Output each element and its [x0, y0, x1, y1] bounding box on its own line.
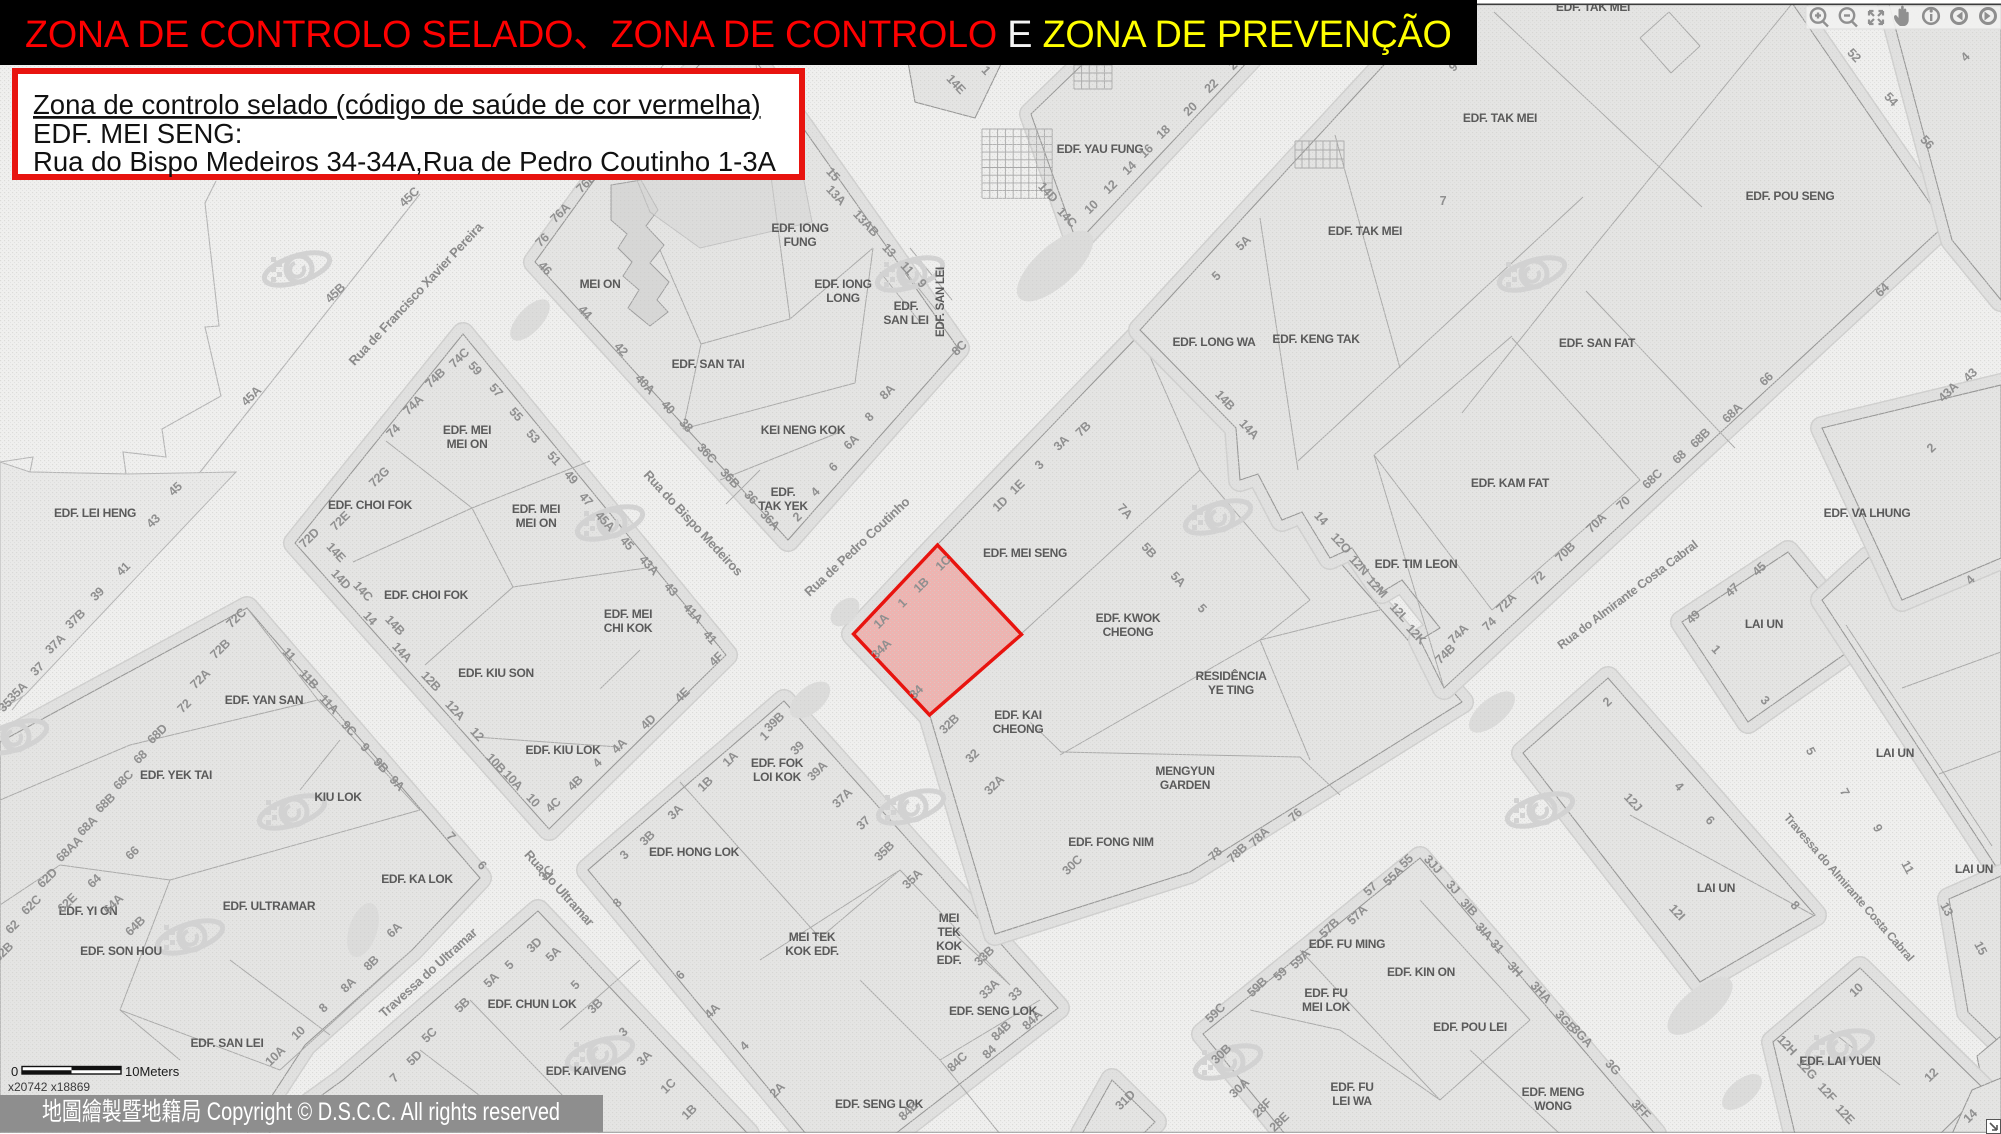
svg-text:EDF. FU: EDF. FU: [1330, 1080, 1373, 1094]
svg-text:TEK: TEK: [937, 925, 961, 939]
svg-text:EDF. LONG WA: EDF. LONG WA: [1172, 335, 1256, 349]
svg-text:EDF. TIM LEON: EDF. TIM LEON: [1375, 557, 1458, 571]
svg-text:EDF. HONG LOK: EDF. HONG LOK: [649, 845, 740, 859]
svg-text:CHEONG: CHEONG: [993, 722, 1044, 736]
svg-text:EDF. KIN ON: EDF. KIN ON: [1387, 965, 1455, 979]
svg-text:EDF. KAM FAT: EDF. KAM FAT: [1471, 476, 1550, 490]
svg-text:Rua do Bispo Medeiros 34-34A,R: Rua do Bispo Medeiros 34-34A,Rua de Pedr…: [33, 146, 777, 177]
svg-text:EDF. KA LOK: EDF. KA LOK: [381, 872, 453, 886]
svg-text:LAI UN: LAI UN: [1697, 881, 1735, 895]
svg-text:EDF. MEI: EDF. MEI: [512, 502, 560, 516]
svg-text:EDF. ULTRAMAR: EDF. ULTRAMAR: [223, 899, 316, 913]
svg-text:EDF. FU MING: EDF. FU MING: [1309, 937, 1385, 951]
svg-text:EDF. TAK MEI: EDF. TAK MEI: [1328, 224, 1402, 238]
svg-text:EDF. MEI SENG:: EDF. MEI SENG:: [33, 118, 242, 149]
svg-text:10Meters: 10Meters: [125, 1064, 180, 1079]
svg-text:FUNG: FUNG: [784, 235, 817, 249]
svg-text:EDF. FU: EDF. FU: [1304, 986, 1347, 1000]
svg-text:EDF. IONG: EDF. IONG: [771, 221, 828, 235]
svg-text:EDF. KAIVENG: EDF. KAIVENG: [546, 1064, 626, 1078]
svg-text:EDF. CHOI FOK: EDF. CHOI FOK: [384, 588, 469, 602]
svg-text:Zona de controlo selado (códig: Zona de controlo selado (código de saúde…: [33, 89, 761, 120]
svg-text:EDF. FONG NIM: EDF. FONG NIM: [1068, 835, 1154, 849]
svg-text:WONG: WONG: [1534, 1099, 1571, 1113]
svg-text:KIU LOK: KIU LOK: [314, 790, 362, 804]
svg-text:EDF. SON HOU: EDF. SON HOU: [80, 944, 162, 958]
svg-text:EDF. KWOK: EDF. KWOK: [1096, 611, 1161, 625]
svg-text:EDF. IONG: EDF. IONG: [814, 277, 871, 291]
svg-text:LAI UN: LAI UN: [1745, 617, 1783, 631]
svg-text:EDF. MENG: EDF. MENG: [1522, 1085, 1585, 1099]
svg-text:EDF. TAK MEI: EDF. TAK MEI: [1463, 111, 1537, 125]
svg-text:EDF. LEI HENG: EDF. LEI HENG: [54, 506, 136, 520]
svg-text:地圖繪製暨地籍局 Copyright © D.S.C.C.: 地圖繪製暨地籍局 Copyright © D.S.C.C. All rights…: [42, 1098, 560, 1126]
svg-text:LOI KOK: LOI KOK: [753, 770, 802, 784]
svg-text:EDF. SAN LEI: EDF. SAN LEI: [190, 1036, 263, 1050]
svg-text:MEI ON: MEI ON: [580, 277, 621, 291]
svg-text:SAN LEI: SAN LEI: [883, 313, 928, 327]
svg-text:EDF. MEI SENG: EDF. MEI SENG: [983, 546, 1067, 560]
svg-text:LONG: LONG: [826, 291, 859, 305]
svg-text:0: 0: [11, 1064, 18, 1079]
svg-text:LEI WA: LEI WA: [1332, 1094, 1372, 1108]
svg-text:MENGYUN: MENGYUN: [1155, 764, 1214, 778]
svg-text:EDF. YAN SAN: EDF. YAN SAN: [225, 693, 303, 707]
svg-text:EDF. KIU SON: EDF. KIU SON: [458, 666, 534, 680]
svg-text:MEI ON: MEI ON: [447, 437, 488, 451]
svg-text:7: 7: [1440, 194, 1447, 208]
svg-text:MEI TEK: MEI TEK: [789, 930, 836, 944]
svg-text:MEI LOK: MEI LOK: [1302, 1000, 1351, 1014]
svg-text:EDF. KAI: EDF. KAI: [994, 708, 1042, 722]
svg-text:YE TING: YE TING: [1208, 683, 1254, 697]
svg-text:EDF. VA LHUNG: EDF. VA LHUNG: [1824, 506, 1911, 520]
svg-text:EDF. MEI: EDF. MEI: [443, 423, 491, 437]
svg-text:EDF. MEI: EDF. MEI: [604, 607, 652, 621]
svg-text:EDF.: EDF.: [894, 299, 919, 313]
svg-text:KOK: KOK: [936, 939, 962, 953]
svg-text:EDF. SENG LOK: EDF. SENG LOK: [949, 1004, 1038, 1018]
svg-text:EDF. KENG TAK: EDF. KENG TAK: [1272, 332, 1360, 346]
svg-text:EDF.: EDF.: [937, 953, 962, 967]
svg-text:GARDEN: GARDEN: [1160, 778, 1210, 792]
svg-text:EDF. SAN FAT: EDF. SAN FAT: [1559, 336, 1636, 350]
svg-text:MEI: MEI: [939, 911, 959, 925]
svg-text:x20742 x18869: x20742 x18869: [8, 1080, 90, 1094]
svg-text:RESIDÊNCIA: RESIDÊNCIA: [1195, 668, 1267, 683]
svg-text:EDF. SAN LEI: EDF. SAN LEI: [935, 267, 947, 337]
svg-text:CHI KOK: CHI KOK: [604, 621, 653, 635]
svg-text:MEI ON: MEI ON: [516, 516, 557, 530]
svg-text:EDF. CHUN LOK: EDF. CHUN LOK: [488, 997, 577, 1011]
svg-text:LAI UN: LAI UN: [1876, 746, 1914, 760]
svg-text:EDF. YAU FUNG: EDF. YAU FUNG: [1057, 142, 1144, 156]
svg-text:EDF. FOK: EDF. FOK: [751, 756, 804, 770]
svg-text:EDF. POU LEI: EDF. POU LEI: [1433, 1020, 1507, 1034]
svg-text:EDF. POU SENG: EDF. POU SENG: [1746, 189, 1835, 203]
svg-text:KOK EDF.: KOK EDF.: [785, 944, 839, 958]
svg-text:KEI NENG KOK: KEI NENG KOK: [761, 423, 846, 437]
svg-text:EDF. SAN TAI: EDF. SAN TAI: [672, 357, 745, 371]
svg-text:EDF. KIU LOK: EDF. KIU LOK: [525, 743, 601, 757]
svg-text:EDF. YEK TAI: EDF. YEK TAI: [140, 768, 212, 782]
svg-text:LAI UN: LAI UN: [1955, 862, 1993, 876]
svg-text:ZONA DE CONTROLO SELADO、ZONA D: ZONA DE CONTROLO SELADO、ZONA DE CONTROLO…: [25, 13, 1452, 55]
svg-text:EDF.: EDF.: [771, 485, 796, 499]
svg-text:CHEONG: CHEONG: [1103, 625, 1154, 639]
